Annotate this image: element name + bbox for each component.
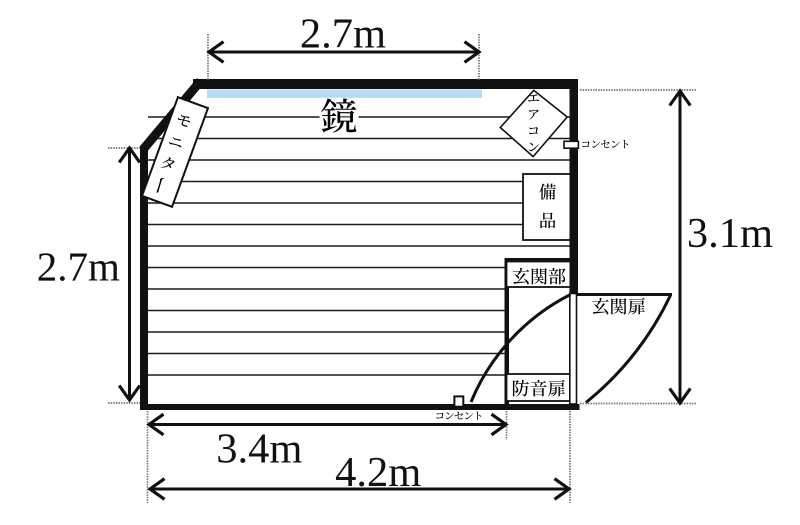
- svg-text:3.4m: 3.4m: [216, 426, 302, 473]
- svg-text:2.7m: 2.7m: [37, 244, 120, 290]
- svg-text:2.7m: 2.7m: [300, 10, 386, 57]
- svg-text:4.2m: 4.2m: [335, 449, 421, 496]
- svg-text:3.1m: 3.1m: [687, 210, 773, 257]
